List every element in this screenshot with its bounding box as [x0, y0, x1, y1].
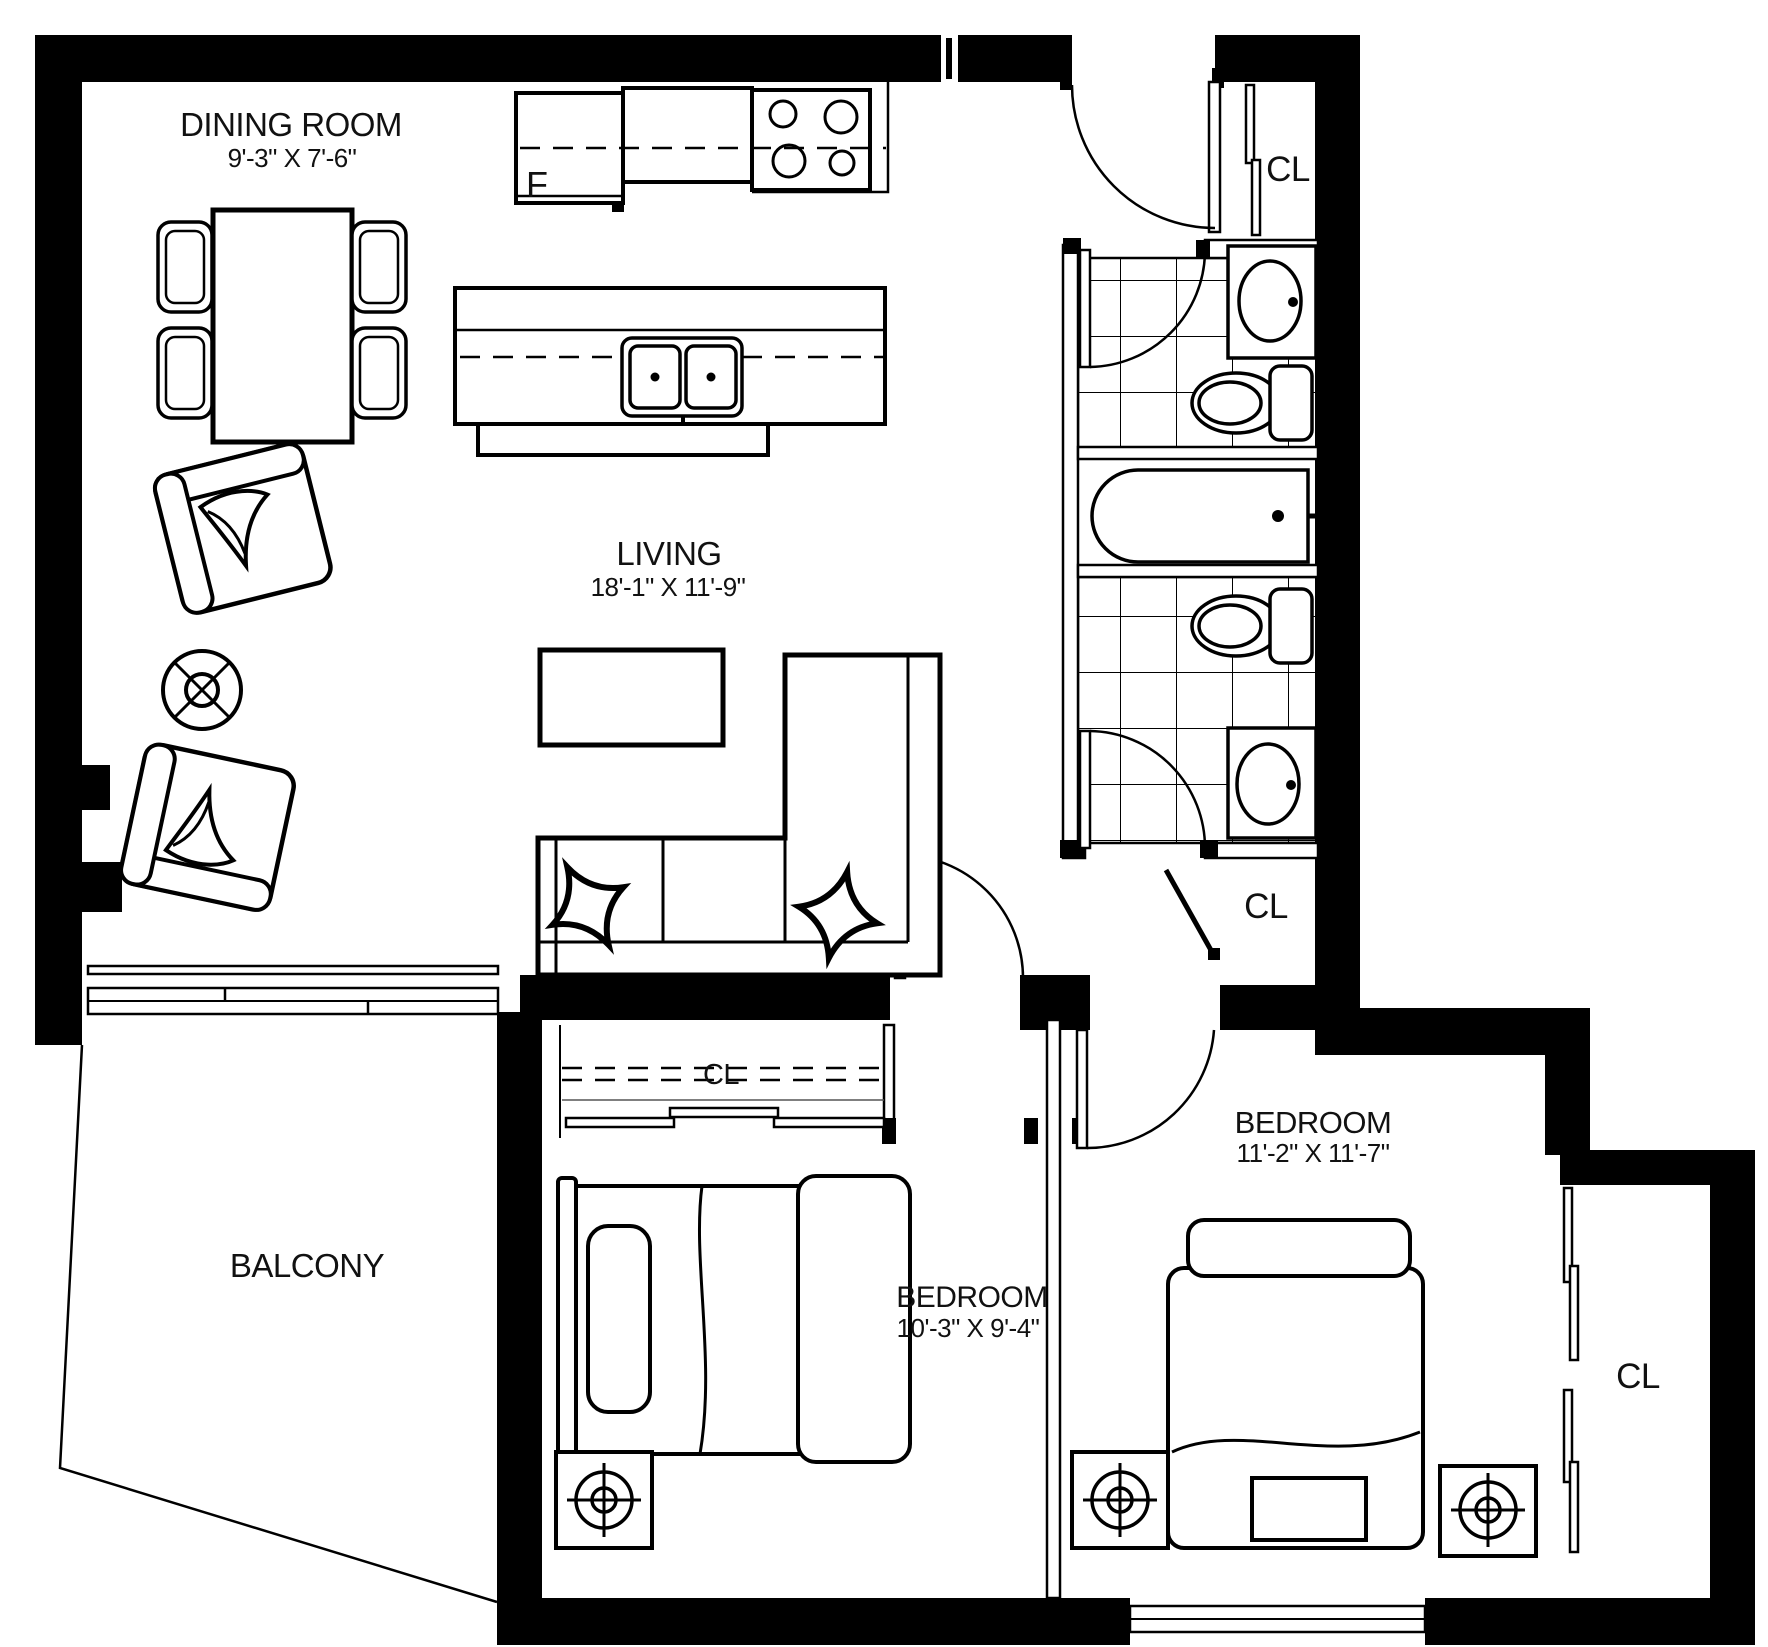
- balcony-label: BALCONY: [230, 1247, 385, 1284]
- wall-bedroom1-left: [497, 1012, 542, 1598]
- dining-room-label: DINING ROOM: [180, 106, 402, 143]
- closet1-slider-3: [774, 1118, 884, 1127]
- hall-closet-label: CL: [1244, 887, 1288, 926]
- living-area: [118, 441, 940, 975]
- armchair-2: [118, 742, 296, 912]
- wall-joint-tick: [946, 38, 952, 79]
- wall-bottom-left: [497, 1598, 1130, 1645]
- dining-chair-1: [158, 222, 212, 312]
- wall-left-bump1: [82, 765, 110, 810]
- wall-top-right: [1215, 35, 1360, 82]
- closet1-slider-2: [670, 1108, 778, 1117]
- sink-drain-right: [707, 373, 716, 382]
- wall-bedroom2-right: [1545, 1052, 1590, 1155]
- entry-closet: [1246, 85, 1260, 235]
- bedroom-center-closet-label: CL: [703, 1059, 739, 1091]
- entry-jamb-left: [1060, 70, 1072, 90]
- living-label: LIVING: [616, 535, 721, 572]
- upper-sink-faucet: [1288, 297, 1298, 307]
- tub-drain: [1272, 510, 1284, 522]
- bedroom-center: [556, 1025, 910, 1548]
- balcony: [60, 966, 498, 1602]
- upper-bathroom-door-leaf: [1080, 250, 1090, 367]
- floor-plan-svg: DINING ROOM 9'-3" X 7'-6" LIVING 18'-1" …: [0, 0, 1768, 1647]
- bedroom2-window: [1130, 1606, 1425, 1632]
- wall-bath-strip-left: [1063, 245, 1078, 855]
- bed1-headboard: [558, 1178, 576, 1462]
- dining-chair-4: [352, 328, 406, 418]
- wall-closet-top: [1560, 1150, 1755, 1185]
- coffee-table: [540, 650, 723, 745]
- dining-chair-3: [352, 222, 406, 312]
- bedroom-center-dims: 10'-3" X 9'-4": [897, 1313, 1040, 1343]
- bed2-foot-bench: [1252, 1478, 1366, 1540]
- lower-sink-faucet: [1286, 780, 1296, 790]
- bedroom-right: [1072, 1220, 1536, 1556]
- bedroom2-door-leaf: [1077, 1030, 1087, 1148]
- wall-bottom-right: [1425, 1598, 1755, 1645]
- wall-right: [1315, 82, 1360, 1010]
- balcony-railing: [60, 1045, 497, 1602]
- entry-closet-slider-1: [1246, 85, 1254, 163]
- closet1-slider-1: [566, 1118, 674, 1127]
- wall-bath-bottom-right: [1205, 843, 1318, 858]
- bedroom2-door-arc: [1087, 1030, 1214, 1148]
- dining-room-dims: 9'-3" X 7'-6": [228, 143, 357, 173]
- wall-bath-divider2: [1078, 565, 1318, 577]
- jamb-tick-6: [1024, 1118, 1038, 1144]
- jamb-tick-4: [1200, 840, 1218, 858]
- living-dims: 18'-1" X 11'-9": [591, 572, 746, 602]
- bed2-headboard: [1188, 1220, 1410, 1276]
- dining-chair-2: [158, 328, 212, 418]
- kitchen-counter: [623, 88, 752, 182]
- floor-plan: DINING ROOM 9'-3" X 7'-6" LIVING 18'-1" …: [0, 0, 1768, 1647]
- armchair-1: [152, 441, 334, 616]
- dining-area: [158, 210, 406, 442]
- fridge-label: F: [526, 164, 548, 205]
- lower-bathroom-door-leaf: [1080, 731, 1090, 848]
- jamb-tick-1: [1063, 238, 1081, 254]
- wall-step-top: [1315, 1008, 1590, 1055]
- bedroom-right-dims: 11'-2" X 11'-7": [1237, 1138, 1390, 1168]
- wall-hall-bedroom2: [1220, 985, 1330, 1030]
- lower-toilet: [1192, 589, 1312, 663]
- closet2-slider-2: [1570, 1266, 1578, 1360]
- balcony-door-track: [88, 966, 498, 974]
- sink-drain-left: [651, 373, 660, 382]
- wall-closet-right: [1710, 1185, 1755, 1645]
- bedroom-right-closet: [1564, 1188, 1578, 1552]
- bedroom-right-label: BEDROOM: [1235, 1105, 1392, 1140]
- island-lower-tier: [478, 424, 768, 455]
- bed1-pillow: [588, 1226, 650, 1412]
- fridge-handle: [612, 202, 624, 212]
- dining-table: [213, 210, 352, 442]
- closet1-jamb: [884, 1025, 894, 1122]
- bedroom-right-closet-label: CL: [1616, 1357, 1660, 1396]
- wall-top: [35, 35, 1072, 82]
- jamb-tick-2: [1196, 240, 1210, 258]
- upper-toilet: [1192, 366, 1312, 440]
- wall-left-bump2: [82, 862, 122, 912]
- closet2-slider-4: [1570, 1462, 1578, 1552]
- entry-closet-slider-2: [1252, 160, 1260, 235]
- entry-door-swing-arc: [1072, 85, 1215, 228]
- bedroom-center-label: BEDROOM: [896, 1281, 1048, 1314]
- bed1-duvet: [798, 1176, 910, 1462]
- wall-between-bedrooms: [1047, 1020, 1060, 1598]
- hall-closet-door-leaf: [1166, 870, 1212, 952]
- wall-living-bedroom: [520, 975, 890, 1020]
- side-table: [163, 651, 241, 729]
- wall-left: [35, 35, 82, 1045]
- wall-bath-divider1: [1078, 447, 1318, 459]
- entry-door-leaf: [1209, 82, 1220, 232]
- kitchen: [455, 82, 888, 455]
- entry-closet-label: CL: [1266, 150, 1310, 189]
